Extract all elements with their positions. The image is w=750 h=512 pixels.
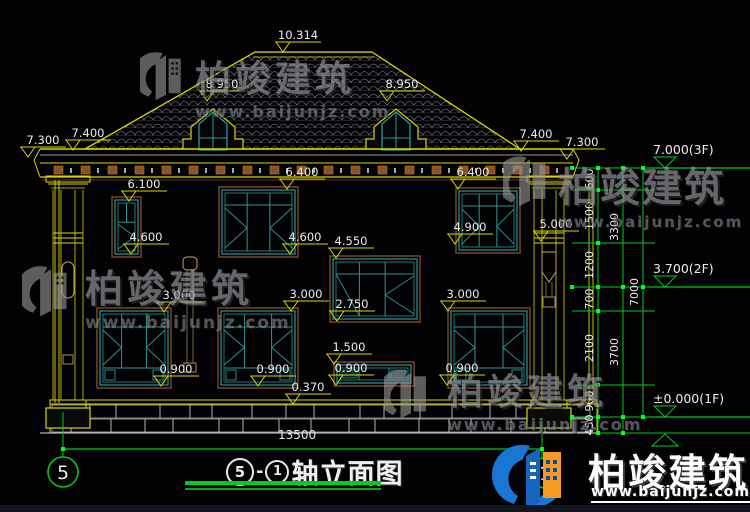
dim-label: 0.900 bbox=[257, 362, 290, 376]
dim-label: 7.400 bbox=[72, 126, 105, 140]
level-label: 7.000(3F) bbox=[653, 142, 714, 157]
dim-label: 8.950 bbox=[386, 77, 419, 91]
stone-base bbox=[40, 400, 608, 433]
chain-dim-label: 1500 bbox=[583, 202, 596, 230]
dim-label: 6.400 bbox=[457, 165, 490, 179]
dim-label: 4.550 bbox=[335, 234, 368, 248]
dim-label: 7.300 bbox=[27, 133, 60, 147]
grid-bubble-label: 5 bbox=[57, 462, 69, 484]
brand-logo: 柏竣建筑 www.baijunjz.com bbox=[492, 440, 750, 510]
brand-logo-icon bbox=[492, 440, 587, 510]
overall-width-dimension: 13500 bbox=[278, 428, 316, 442]
title-text: 轴立面图 bbox=[291, 452, 403, 491]
dim-label: 4.600 bbox=[130, 230, 163, 244]
dim-label: 8.950 bbox=[206, 77, 239, 91]
level-label: 3.700(2F) bbox=[653, 261, 714, 276]
level-markers: 7.000(3F)3.700(2F)±0.000(1F) bbox=[649, 142, 750, 446]
title-axis-bubble-1: 1 bbox=[265, 460, 289, 484]
bottom-taskbar-strip bbox=[0, 505, 750, 512]
dim-label: 7.400 bbox=[520, 127, 553, 141]
dim-label: 0.900 bbox=[335, 361, 368, 375]
dim-label: 6.400 bbox=[286, 165, 319, 179]
dim-label: 6.100 bbox=[128, 177, 161, 191]
dim-label: 3.000 bbox=[290, 287, 323, 301]
dim-label: 4.600 bbox=[289, 230, 322, 244]
chain-dim-label: 3300 bbox=[608, 213, 621, 241]
dim-label: 0.900 bbox=[160, 362, 193, 376]
walls bbox=[55, 180, 593, 403]
chain-dim-label: 600 bbox=[583, 169, 596, 190]
chain-dim-label: 2100 bbox=[583, 334, 596, 362]
dim-label: 0.900 bbox=[446, 361, 479, 375]
dim-label: 1.500 bbox=[333, 340, 366, 354]
watermark-logo-icon bbox=[22, 260, 80, 320]
dim-label: 7.300 bbox=[566, 135, 599, 149]
chain-dim-label: 700 bbox=[583, 289, 596, 310]
chain-dim-label: 450 bbox=[583, 415, 596, 436]
watermark-logo-icon bbox=[503, 150, 557, 210]
watermark-logo-icon bbox=[140, 46, 192, 104]
elevation-drawing: 51 10.3148.9508.9507.3007.4007.4007.3006… bbox=[0, 0, 750, 512]
dim-label: 3.000 bbox=[163, 288, 196, 302]
cad-viewport: 51 10.3148.9508.9507.3007.4007.4007.3006… bbox=[0, 0, 750, 512]
drawing-title: 5 - 1 轴立面图 bbox=[226, 452, 403, 491]
dim-label: 10.314 bbox=[278, 28, 318, 42]
chain-dim-label: 900 bbox=[583, 391, 596, 412]
chain-dim-label: 7000 bbox=[628, 278, 641, 306]
chain-dim-label: 1200 bbox=[583, 251, 596, 279]
watermark-logo-icon bbox=[384, 364, 438, 422]
dim-label: 3.000 bbox=[447, 287, 480, 301]
dim-label: 2.750 bbox=[336, 297, 369, 311]
title-underline-thick bbox=[185, 481, 381, 485]
dim-label: 4.900 bbox=[454, 220, 487, 234]
dim-label: 5.000 bbox=[540, 217, 573, 231]
chain-dim-label: 3700 bbox=[608, 338, 621, 366]
title-underline-thin bbox=[185, 488, 381, 490]
brand-logo-url: www.baijunjz.com bbox=[591, 484, 750, 503]
level-label: ±0.000(1F) bbox=[653, 391, 724, 406]
title-dash: - bbox=[256, 461, 263, 482]
dim-label: 0.370 bbox=[292, 380, 325, 394]
